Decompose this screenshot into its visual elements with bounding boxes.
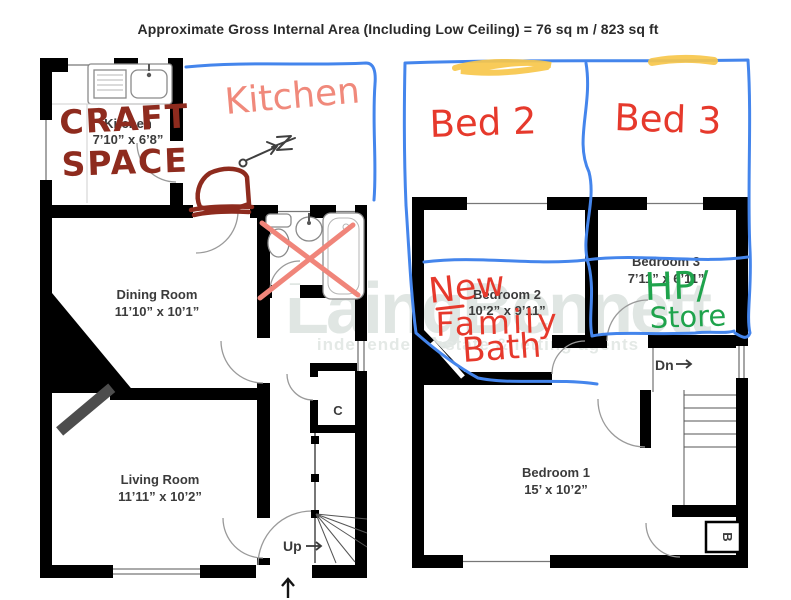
craft-space-text-line1: CRAFT bbox=[58, 96, 190, 142]
maroon-shape-sketch bbox=[191, 169, 252, 215]
bed3-text: Bed 3 bbox=[614, 96, 722, 143]
cupboard-label: C bbox=[333, 403, 343, 418]
living-room-dims: 11’11” x 10’2” bbox=[118, 489, 202, 504]
boiler-label: B bbox=[720, 532, 735, 541]
entry-arrow-icon bbox=[282, 579, 294, 598]
up-label: Up bbox=[283, 538, 302, 554]
dn-label: Dn bbox=[655, 357, 674, 373]
new-family-bath-line3: Bath bbox=[461, 326, 543, 371]
craft-space-text-line2: SPACE bbox=[61, 141, 190, 184]
bed2-text: Bed 2 bbox=[429, 99, 537, 146]
living-room-label: Living Room bbox=[121, 472, 200, 487]
up-arrow-icon bbox=[306, 542, 321, 550]
floorplan-image: Approximate Gross Internal Area (Includi… bbox=[0, 0, 791, 600]
kitchen-handwritten-text: Kitchen bbox=[223, 70, 361, 123]
dining-room-label: Dining Room bbox=[117, 287, 198, 302]
bedroom1-label: Bedroom 1 bbox=[522, 465, 590, 480]
dining-room-dims: 11’10” x 10’1” bbox=[115, 304, 200, 319]
pencil-arrow-icon bbox=[240, 136, 296, 167]
hp-store-line2: Store bbox=[649, 298, 727, 335]
boiler-cupboard: B bbox=[706, 522, 740, 552]
page-title: Approximate Gross Internal Area (Includi… bbox=[137, 21, 658, 37]
bedroom1-dims: 15’ x 10’2” bbox=[524, 482, 588, 497]
dn-arrow-icon bbox=[676, 360, 691, 368]
